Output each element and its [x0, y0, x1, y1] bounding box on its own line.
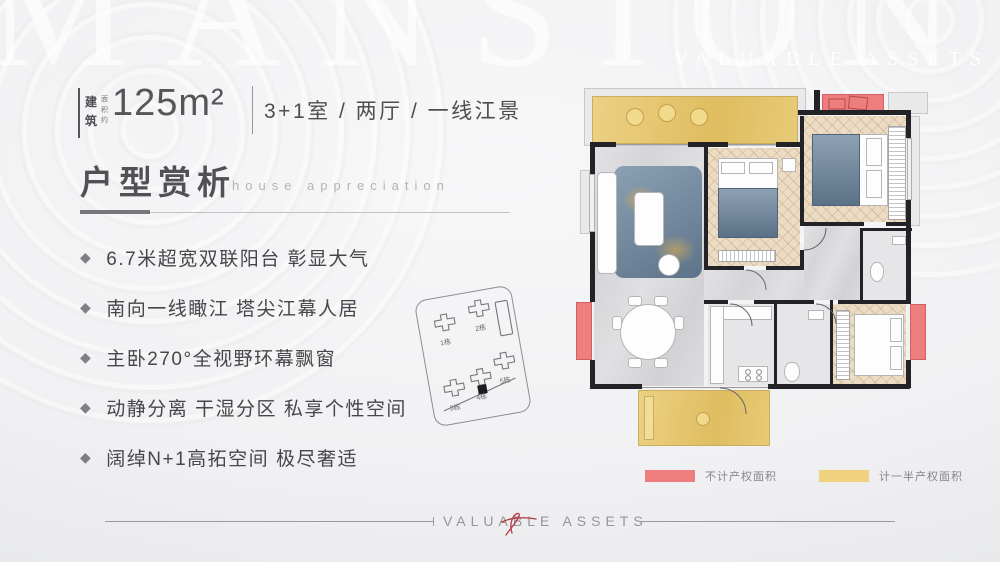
legend-item: 计一半产权面积 [819, 468, 963, 484]
building-label: 3栋 [449, 402, 461, 414]
footer-text: VALUABLE ASSETS [443, 513, 648, 529]
diamond-bullet-icon: ◆ [80, 450, 92, 464]
watermark-valuable-assets: VALUABLE ASSETS [674, 48, 990, 71]
feature-text: 动静分离 干湿分区 私享个性空间 [106, 394, 407, 421]
footer-line-left [105, 521, 433, 522]
section-subtitle: house appreciation [232, 178, 450, 193]
feature-item: ◆阔绰N+1高拓空间 极尽奢适 [80, 444, 407, 470]
feature-text: 6.7米超宽双联阳台 彰显大气 [106, 244, 369, 271]
building-label: 1栋 [439, 337, 451, 349]
header-accent-bar [78, 88, 80, 138]
legend-swatch-red [645, 470, 695, 482]
feature-item: ◆动静分离 干湿分区 私享个性空间 [80, 394, 407, 420]
building-label: 5栋 [499, 375, 511, 387]
brochure-slide: MANSION VALUABLE ASSETS 建筑 面积约 125m² 3+1… [0, 0, 1000, 562]
footer: VALUABLE ASSETS [0, 512, 1000, 536]
site-plan-buildings [415, 286, 531, 427]
diamond-bullet-icon: ◆ [80, 250, 92, 264]
door-arcs [570, 70, 938, 462]
floor-plan-legend: 不计产权面积 计一半产权面积 [645, 468, 963, 484]
building-label: 2栋 [475, 322, 487, 334]
unit-description: 3+1室 / 两厅 / 一线江景 [264, 95, 522, 125]
footer-red-script-icon [498, 505, 542, 539]
section-title: 户型赏析 [80, 156, 236, 204]
footer-line-right [640, 521, 895, 522]
feature-list: ◆6.7米超宽双联阳台 彰显大气 ◆南向一线瞰江 塔尖江幕人居 ◆主卧270°全… [80, 244, 407, 494]
feature-text: 南向一线瞰江 塔尖江幕人居 [106, 294, 359, 321]
area-value: 125m² [112, 82, 225, 125]
section-underline-accent [80, 210, 150, 214]
legend-item: 不计产权面积 [645, 468, 777, 484]
site-plan-minimap: 1栋 2栋 3栋 4栋 5栋 [414, 284, 533, 427]
feature-text: 阔绰N+1高拓空间 极尽奢适 [106, 444, 358, 471]
legend-label: 不计产权面积 [705, 468, 777, 484]
legend-swatch-yellow [819, 470, 869, 482]
feature-text: 主卧270°全视野环幕飘窗 [106, 344, 336, 371]
diamond-bullet-icon: ◆ [80, 400, 92, 414]
floor-plan [570, 70, 938, 462]
footer-tick [433, 517, 434, 526]
header-divider [252, 86, 253, 134]
building-label: 4栋 [475, 391, 487, 403]
feature-item: ◆6.7米超宽双联阳台 彰显大气 [80, 244, 407, 270]
diamond-bullet-icon: ◆ [80, 350, 92, 364]
area-label-sub: 面积约 [101, 95, 109, 127]
area-label-main: 建筑 [85, 93, 99, 130]
feature-item: ◆南向一线瞰江 塔尖江幕人居 [80, 294, 407, 320]
legend-label: 计一半产权面积 [879, 468, 963, 484]
diamond-bullet-icon: ◆ [80, 300, 92, 314]
feature-item: ◆主卧270°全视野环幕飘窗 [80, 344, 407, 370]
